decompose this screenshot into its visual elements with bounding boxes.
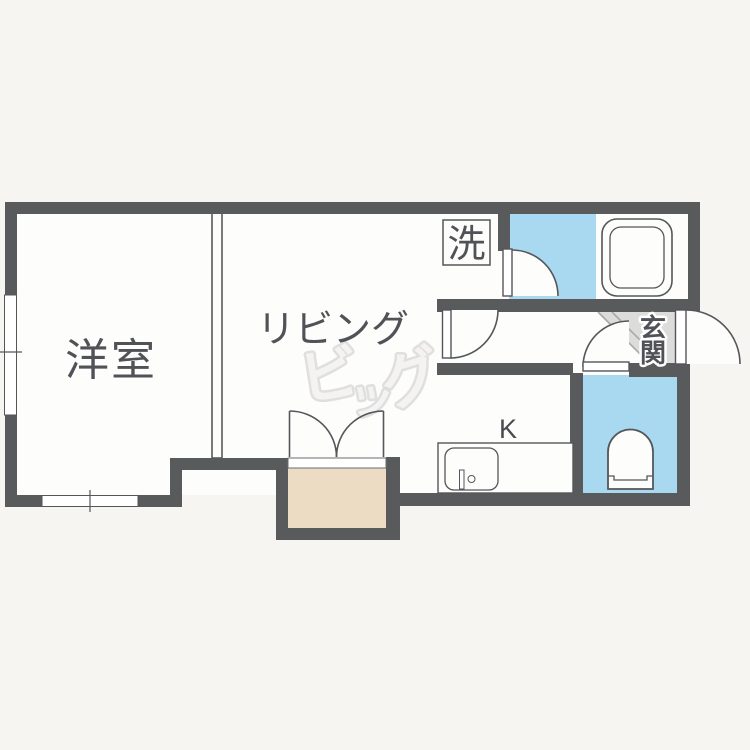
front-door-leaf [676, 310, 687, 364]
wall-closet-bottom [276, 528, 400, 540]
partition-wall [212, 210, 222, 458]
washer-label: 洗 [447, 224, 485, 266]
kitchen-faucet [460, 470, 465, 489]
entrance-label-bottom: 関 [640, 338, 666, 368]
western-room-label: 洋室 [65, 336, 157, 385]
kitchen-label: K [499, 414, 517, 444]
wall-laundry-shower-divider [498, 213, 510, 251]
wall-right-upper [688, 202, 700, 312]
wall-right-lower [677, 373, 690, 506]
wall-top [5, 202, 700, 214]
window-left [5, 295, 17, 415]
front-door [676, 310, 741, 364]
shower-door-leaf [503, 249, 512, 296]
wall-kitchen-toilet-bottom [386, 493, 690, 506]
washer-area: 洗 [443, 220, 490, 266]
entrance-label: 玄 関 [640, 313, 666, 368]
kitchen-drain-knob [468, 476, 475, 483]
kitchen-counter-top [438, 443, 573, 493]
toilet-door-leaf [583, 362, 629, 371]
floor-plan: ビ ッ グ [0, 0, 750, 750]
kitchen-counter [438, 443, 573, 493]
wall-living-bottom [170, 458, 288, 470]
wall-closet-left [276, 458, 288, 540]
toilet-fixture [608, 430, 653, 489]
hallway-door-leaf [443, 310, 452, 358]
front-door-swing-area [686, 310, 740, 364]
closet-threshold [288, 458, 386, 468]
bathtub [602, 219, 672, 296]
wall-hallway-bottom [437, 363, 573, 375]
living-room-label: リビング [257, 309, 409, 351]
floor-plan-svg: ビ ッ グ [0, 0, 750, 750]
